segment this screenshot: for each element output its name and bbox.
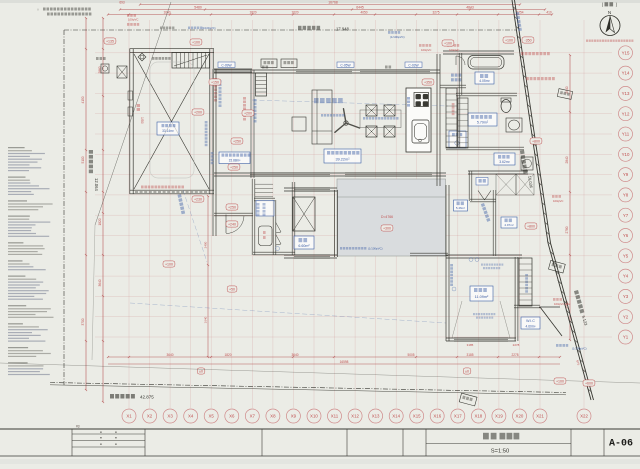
svg-text:X14: X14 [392, 414, 400, 419]
svg-text:+100: +100 [165, 262, 173, 266]
svg-text:X8: X8 [270, 414, 276, 419]
svg-text:+100: +100 [505, 38, 513, 42]
svg-text:Y12: Y12 [622, 111, 630, 116]
svg-text:3275: 3275 [432, 10, 439, 14]
svg-text:#3: #3 [76, 425, 80, 429]
svg-text:3.62m²: 3.62m² [499, 160, 510, 164]
svg-text:6.60m²: 6.60m² [298, 244, 310, 248]
svg-text:C-09W: C-09W [221, 63, 232, 67]
svg-text:X12: X12 [351, 414, 359, 419]
svg-text:X21: X21 [536, 414, 544, 419]
svg-text:4.60m²: 4.60m² [526, 325, 536, 329]
svg-text:4050: 4050 [360, 10, 367, 14]
svg-text:D=4766: D=4766 [381, 215, 393, 219]
svg-text:1820: 1820 [224, 353, 231, 357]
svg-text:16598: 16598 [340, 360, 349, 364]
svg-text:+250: +250 [228, 205, 236, 209]
svg-text:2860: 2860 [98, 66, 102, 73]
svg-text:W.I.C: W.I.C [526, 319, 535, 323]
svg-text:+250: +250 [230, 165, 238, 169]
svg-text:42.875: 42.875 [140, 394, 154, 399]
svg-text:1820: 1820 [98, 218, 102, 225]
svg-text:+230: +230 [194, 197, 202, 201]
svg-text:5005: 5005 [407, 353, 414, 357]
svg-text:X17: X17 [454, 414, 462, 419]
svg-text:33.14m²: 33.14m² [162, 129, 174, 133]
svg-text:+600: +600 [585, 381, 593, 385]
svg-text:6445: 6445 [356, 5, 364, 9]
svg-text:+100: +100 [444, 41, 452, 45]
svg-text:2278: 2278 [513, 343, 520, 347]
svg-text:Y11: Y11 [622, 132, 630, 137]
svg-text:3640: 3640 [291, 353, 298, 357]
svg-text:100φVC: 100φVC [128, 18, 138, 22]
svg-text:2400: 2400 [204, 241, 208, 248]
svg-text:Y3: Y3 [623, 294, 629, 299]
svg-text:Y9: Y9 [623, 172, 629, 177]
svg-text:1620: 1620 [291, 10, 298, 14]
svg-text:5100: 5100 [81, 156, 85, 163]
svg-text:1/50: 1/50 [140, 117, 144, 124]
svg-text:2840: 2840 [565, 156, 569, 163]
svg-text:X15: X15 [413, 414, 421, 419]
svg-text:(1/100φVC): (1/100φVC) [202, 26, 216, 30]
svg-text:○: ○ [37, 8, 39, 12]
svg-text:X18: X18 [474, 414, 482, 419]
svg-text:39.22m²: 39.22m² [336, 158, 351, 162]
svg-text:+200: +200 [244, 111, 252, 115]
svg-text:+800: +800 [527, 224, 535, 228]
svg-text:X3: X3 [167, 414, 173, 419]
svg-text:11.09m²: 11.09m² [475, 295, 489, 299]
svg-text:3700: 3700 [81, 318, 85, 325]
svg-text:3640: 3640 [98, 279, 102, 286]
svg-text:+250: +250 [233, 139, 241, 143]
svg-text:X7: X7 [250, 414, 256, 419]
svg-text:A-06: A-06 [609, 438, 633, 449]
svg-text:N: N [608, 10, 611, 15]
svg-text:X22: X22 [580, 414, 588, 419]
svg-text:(1/100φVC): (1/100φVC) [368, 247, 383, 251]
svg-text:Y5: Y5 [623, 253, 629, 258]
svg-text:5.46m²: 5.46m² [456, 206, 465, 210]
svg-text:5.79m²: 5.79m² [477, 121, 489, 125]
svg-text:(1/100φVC): (1/100φVC) [572, 347, 587, 351]
svg-text:410: 410 [546, 10, 552, 14]
svg-text:100φVC: 100φVC [449, 48, 459, 52]
svg-text:1820: 1820 [249, 10, 256, 14]
svg-text:100φVC: 100φVC [421, 48, 431, 52]
svg-text:X2: X2 [147, 414, 153, 419]
svg-text:±0: ±0 [199, 369, 203, 373]
svg-text:±0: ±0 [465, 369, 469, 373]
svg-text:2278: 2278 [511, 353, 518, 357]
svg-text:X20: X20 [516, 414, 524, 419]
svg-text:Y1: Y1 [623, 335, 629, 340]
svg-text:Y4: Y4 [623, 274, 629, 279]
svg-text:-350: -350 [524, 38, 531, 42]
svg-text:17.948: 17.948 [336, 26, 349, 31]
svg-text:5480: 5480 [194, 5, 202, 9]
svg-text:+350: +350 [424, 80, 432, 84]
svg-text:+50: +50 [229, 287, 235, 291]
svg-text:12.064: 12.064 [94, 178, 99, 191]
svg-text:100φVC: 100φVC [553, 199, 563, 203]
svg-text:X19: X19 [495, 414, 503, 419]
svg-text:1640: 1640 [204, 316, 208, 323]
svg-text:Y14: Y14 [622, 71, 630, 76]
svg-text:Y8: Y8 [623, 193, 629, 198]
svg-text:X16: X16 [433, 414, 441, 419]
svg-text:Y13: Y13 [622, 91, 630, 96]
svg-text:+300: +300 [383, 226, 391, 230]
svg-text:3640: 3640 [166, 353, 173, 357]
svg-text:+135: +135 [106, 39, 114, 43]
svg-text:4.05m²: 4.05m² [479, 79, 490, 83]
svg-text:4150: 4150 [81, 96, 85, 103]
svg-text:+800: +800 [532, 139, 540, 143]
svg-text:Y15: Y15 [622, 50, 630, 55]
svg-text:+200: +200 [194, 110, 202, 114]
svg-text:Y7: Y7 [623, 213, 629, 218]
svg-text:693: 693 [119, 0, 125, 4]
svg-text:100φVC 24H: 100φVC 24H [554, 302, 570, 306]
svg-text:+100: +100 [192, 40, 200, 44]
svg-text:X10: X10 [310, 414, 318, 419]
svg-text:Y2: Y2 [623, 314, 629, 319]
svg-text:X13: X13 [372, 414, 380, 419]
svg-text:16768: 16768 [328, 0, 338, 4]
svg-text:S=1:50: S=1:50 [491, 449, 510, 455]
svg-text:X4: X4 [188, 414, 194, 419]
svg-text:+240: +240 [228, 222, 236, 226]
svg-text:X1: X1 [126, 414, 132, 419]
svg-text:3185: 3185 [466, 353, 473, 357]
svg-text:Y6: Y6 [623, 233, 629, 238]
svg-text:+100: +100 [556, 379, 564, 383]
svg-text:4843: 4843 [466, 5, 474, 9]
svg-text:(1/100φVC): (1/100φVC) [390, 35, 405, 39]
svg-text:3185: 3185 [467, 343, 474, 347]
svg-text:4.97m²: 4.97m² [504, 223, 513, 227]
svg-text:C-03W: C-03W [408, 63, 419, 67]
svg-text:X9: X9 [291, 414, 297, 419]
svg-text:2780: 2780 [565, 226, 569, 233]
svg-text:X11: X11 [331, 414, 339, 419]
svg-text:15.88m²: 15.88m² [229, 159, 241, 163]
svg-text:X5: X5 [209, 414, 215, 419]
svg-text:Y10: Y10 [622, 152, 630, 157]
svg-text:X6: X6 [229, 414, 235, 419]
svg-text:+150: +150 [211, 80, 219, 84]
svg-text:C-05W: C-05W [340, 63, 351, 67]
